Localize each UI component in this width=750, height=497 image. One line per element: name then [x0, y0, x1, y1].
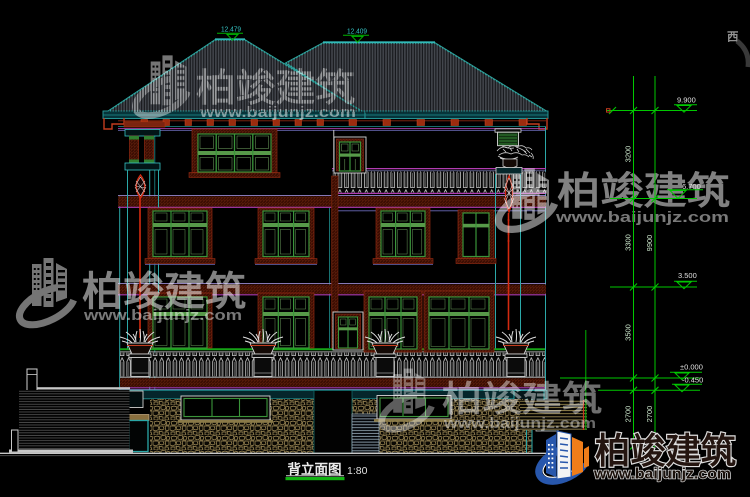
svg-text:12.479: 12.479: [221, 25, 241, 34]
svg-text:-0.450: -0.450: [682, 376, 703, 385]
svg-text:12.409: 12.409: [347, 27, 367, 36]
svg-text:2700: 2700: [624, 406, 633, 423]
svg-text:柏竣建筑: 柏竣建筑: [442, 379, 602, 419]
svg-text:3300: 3300: [624, 234, 633, 251]
svg-text:2700: 2700: [645, 406, 654, 423]
svg-text:www.baijunjz.com: www.baijunjz.com: [83, 307, 242, 324]
svg-text:柏竣建筑: 柏竣建筑: [557, 171, 730, 213]
svg-text:www.baijunjz.com: www.baijunjz.com: [593, 467, 731, 483]
svg-text:背立面图: 背立面图: [288, 461, 342, 477]
svg-text:±0.000: ±0.000: [680, 363, 703, 372]
svg-text:柏竣建筑: 柏竣建筑: [595, 431, 736, 471]
svg-text:1:80: 1:80: [347, 465, 368, 477]
svg-text:9900: 9900: [645, 235, 654, 252]
svg-text:www.baijunjz.com: www.baijunjz.com: [555, 209, 729, 226]
svg-text:3200: 3200: [624, 146, 633, 163]
svg-text:www.baijunjz.com: www.baijunjz.com: [443, 416, 596, 432]
svg-text:6.700: 6.700: [682, 182, 701, 191]
svg-text:9.900: 9.900: [677, 96, 696, 105]
svg-text:3500: 3500: [624, 324, 633, 341]
svg-text:3.500: 3.500: [678, 271, 697, 280]
